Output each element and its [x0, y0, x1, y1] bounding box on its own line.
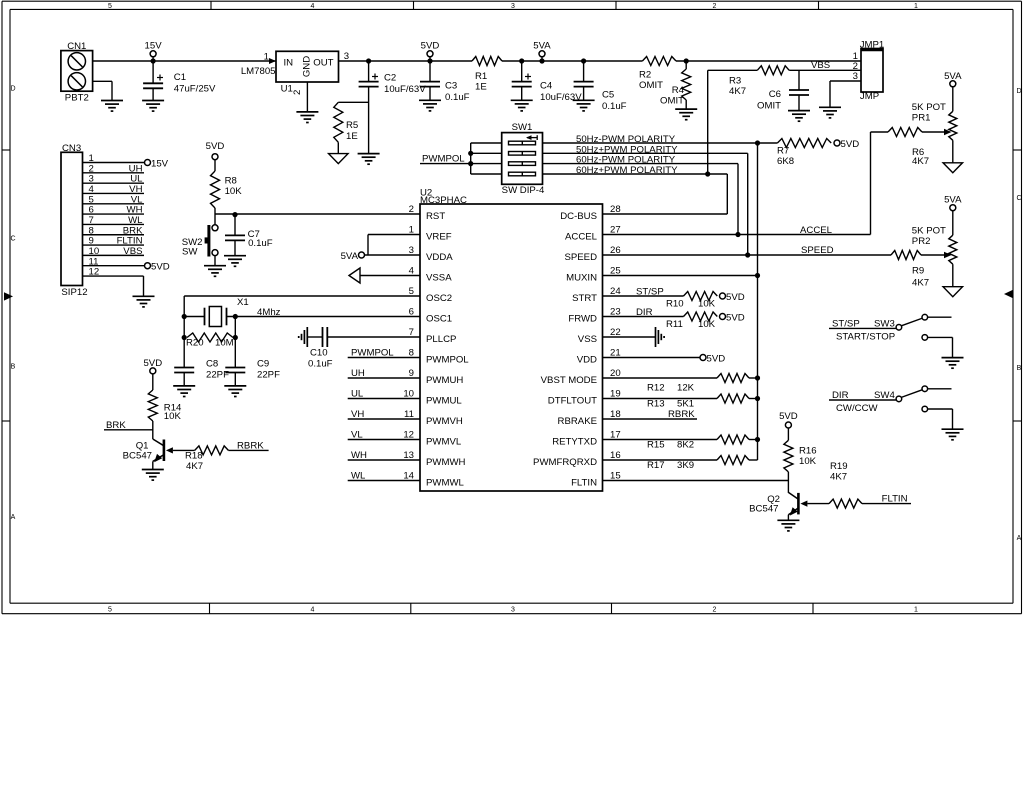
svg-text:UL: UL [351, 389, 364, 400]
svg-text:C4: C4 [540, 81, 553, 92]
svg-text:PWMVL: PWMVL [426, 437, 462, 448]
svg-text:SPEED: SPEED [564, 252, 597, 263]
svg-text:WL: WL [351, 471, 366, 482]
svg-text:0.1uF: 0.1uF [445, 92, 470, 103]
svg-text:RBRK: RBRK [237, 440, 264, 451]
svg-text:C6: C6 [769, 89, 781, 100]
svg-text:1E: 1E [475, 82, 487, 93]
svg-text:MC3PHAC: MC3PHAC [420, 195, 467, 206]
svg-text:5VA: 5VA [341, 251, 359, 262]
svg-text:RST: RST [426, 211, 445, 222]
svg-text:WH: WH [351, 450, 367, 461]
svg-text:ACCEL: ACCEL [565, 232, 598, 243]
svg-text:PWMWL: PWMWL [426, 478, 465, 489]
svg-text:SW DIP-4: SW DIP-4 [502, 185, 545, 196]
svg-text:4K7: 4K7 [830, 472, 847, 483]
svg-text:C10: C10 [310, 348, 328, 359]
svg-text:RETYTXD: RETYTXD [552, 437, 597, 448]
svg-text:RBRAKE: RBRAKE [558, 416, 597, 427]
svg-text:SW1: SW1 [512, 122, 533, 133]
svg-text:R8: R8 [225, 176, 237, 187]
svg-text:VDD: VDD [577, 355, 597, 366]
svg-text:SIP12: SIP12 [61, 287, 87, 298]
svg-text:R7: R7 [777, 146, 789, 157]
svg-text:5VD: 5VD [206, 141, 225, 152]
svg-text:JMP: JMP [860, 91, 879, 102]
svg-text:D: D [1016, 88, 1021, 95]
svg-text:RBRK: RBRK [668, 409, 695, 420]
svg-text:OMIT: OMIT [639, 80, 663, 91]
svg-text:R3: R3 [729, 76, 741, 87]
svg-text:R5: R5 [346, 120, 358, 131]
svg-text:BC547: BC547 [123, 451, 152, 462]
svg-text:22PF: 22PF [206, 370, 229, 381]
svg-text:OUT: OUT [313, 58, 333, 69]
svg-text:60Hz+PWM POLARITY: 60Hz+PWM POLARITY [576, 165, 678, 176]
svg-text:PWMUH: PWMUH [426, 375, 463, 386]
svg-text:5VD: 5VD [726, 313, 745, 324]
svg-text:12K: 12K [677, 383, 695, 394]
svg-text:1: 1 [914, 3, 918, 10]
svg-text:5: 5 [108, 607, 112, 614]
svg-text:10M: 10M [215, 338, 234, 349]
svg-text:4K7: 4K7 [912, 156, 929, 167]
svg-text:C: C [1016, 195, 1021, 202]
svg-text:PWMPOL: PWMPOL [351, 348, 394, 359]
svg-text:10K: 10K [225, 186, 243, 197]
svg-text:GND: GND [302, 56, 313, 77]
svg-text:BC547: BC547 [749, 504, 778, 515]
svg-text:VSSA: VSSA [426, 273, 452, 284]
svg-text:5: 5 [108, 3, 112, 10]
svg-text:C: C [10, 235, 15, 242]
svg-text:6K8: 6K8 [777, 156, 794, 167]
svg-text:R9: R9 [912, 266, 924, 277]
svg-text:4: 4 [310, 3, 314, 10]
svg-text:5K POT: 5K POT [912, 102, 946, 113]
svg-text:STRT: STRT [572, 293, 597, 304]
svg-text:B: B [1017, 365, 1022, 372]
svg-text:5VA: 5VA [944, 71, 962, 82]
svg-text:5VD: 5VD [143, 358, 162, 369]
svg-text:0.1uF: 0.1uF [248, 238, 273, 249]
svg-text:5VD: 5VD [151, 262, 170, 273]
svg-text:PWMWH: PWMWH [426, 457, 466, 468]
svg-text:LM7805: LM7805 [241, 66, 276, 77]
svg-text:15V: 15V [145, 41, 163, 52]
svg-text:VBST MODE: VBST MODE [541, 375, 597, 386]
svg-text:JMP1: JMP1 [860, 40, 885, 51]
svg-text:R17: R17 [647, 460, 665, 471]
svg-text:4K7: 4K7 [729, 86, 746, 97]
svg-text:5VD: 5VD [421, 41, 440, 52]
svg-text:A: A [1017, 535, 1022, 542]
svg-text:5VD: 5VD [707, 354, 726, 365]
svg-text:10uF/63V: 10uF/63V [540, 92, 582, 103]
svg-text:C5: C5 [602, 90, 614, 101]
svg-text:C9: C9 [257, 359, 269, 370]
svg-text:IN: IN [284, 58, 294, 69]
svg-text:CN1: CN1 [67, 41, 86, 52]
svg-text:B: B [11, 364, 16, 371]
svg-text:10K: 10K [698, 319, 716, 330]
svg-text:DC-BUS: DC-BUS [560, 211, 597, 222]
svg-text:R19: R19 [830, 461, 848, 472]
svg-text:DIR: DIR [636, 307, 653, 318]
svg-text:START/STOP: START/STOP [836, 332, 895, 343]
svg-text:60Hz-PWM POLARITY: 60Hz-PWM POLARITY [576, 155, 676, 166]
svg-text:PWMUL: PWMUL [426, 396, 462, 407]
svg-text:PR1: PR1 [912, 113, 931, 124]
svg-text:DIR: DIR [832, 390, 849, 401]
svg-text:A: A [11, 514, 16, 521]
svg-text:0.1uF: 0.1uF [308, 359, 333, 370]
svg-text:CN3: CN3 [62, 143, 81, 154]
svg-text:R2: R2 [639, 70, 651, 81]
svg-text:5VD: 5VD [841, 139, 860, 150]
svg-text:R4: R4 [672, 85, 685, 96]
svg-text:R10: R10 [666, 299, 684, 310]
svg-text:C1: C1 [174, 72, 186, 83]
svg-text:OSC2: OSC2 [426, 293, 452, 304]
svg-text:VBS: VBS [123, 246, 142, 257]
svg-text:R20: R20 [186, 338, 204, 349]
svg-text:R13: R13 [647, 399, 665, 410]
svg-text:4K7: 4K7 [186, 461, 203, 472]
svg-text:SW: SW [182, 247, 198, 258]
svg-text:ACCEL: ACCEL [800, 225, 833, 236]
svg-text:SW4: SW4 [874, 390, 895, 401]
svg-text:ST/SP: ST/SP [636, 287, 664, 298]
svg-text:R11: R11 [666, 319, 683, 330]
svg-text:MUXIN: MUXIN [566, 273, 597, 284]
svg-text:VBS: VBS [811, 60, 830, 71]
svg-text:10K: 10K [799, 456, 817, 467]
svg-text:10K: 10K [164, 411, 182, 422]
svg-text:UH: UH [351, 368, 365, 379]
svg-text:1E: 1E [346, 131, 358, 142]
svg-text:8K2: 8K2 [677, 440, 694, 451]
svg-text:VDDA: VDDA [426, 252, 453, 263]
svg-text:FRWD: FRWD [568, 314, 597, 325]
svg-text:OMIT: OMIT [660, 96, 684, 107]
svg-text:15V: 15V [151, 159, 169, 170]
svg-text:FLTIN: FLTIN [571, 478, 597, 489]
svg-text:VREF: VREF [426, 232, 452, 243]
svg-text:4: 4 [310, 607, 314, 614]
svg-text:3: 3 [511, 3, 515, 10]
svg-text:BRK: BRK [106, 420, 126, 431]
svg-text:5VA: 5VA [944, 195, 962, 206]
svg-text:2: 2 [713, 3, 717, 10]
svg-text:R1: R1 [475, 71, 487, 82]
svg-text:PLLCP: PLLCP [426, 334, 456, 345]
svg-text:3K9: 3K9 [677, 460, 694, 471]
svg-text:OMIT: OMIT [757, 101, 781, 112]
svg-text:10uF/63V: 10uF/63V [384, 84, 426, 95]
svg-text:SPEED: SPEED [801, 245, 834, 256]
svg-text:PWMPOL: PWMPOL [426, 355, 469, 366]
svg-text:PWMFRQRXD: PWMFRQRXD [533, 457, 597, 468]
svg-text:X1: X1 [237, 297, 249, 308]
svg-text:C8: C8 [206, 359, 218, 370]
svg-text:3: 3 [853, 71, 858, 82]
svg-text:PR2: PR2 [912, 236, 931, 247]
svg-text:FLTIN: FLTIN [882, 493, 908, 504]
svg-text:22PF: 22PF [257, 370, 280, 381]
svg-text:CW/CCW: CW/CCW [836, 403, 879, 414]
svg-text:C3: C3 [445, 81, 457, 92]
svg-text:R15: R15 [647, 440, 665, 451]
svg-text:DTFLTOUT: DTFLTOUT [548, 396, 597, 407]
svg-text:5K POT: 5K POT [912, 226, 946, 237]
svg-text:R12: R12 [647, 383, 665, 394]
svg-text:4K7: 4K7 [912, 278, 929, 289]
svg-text:2: 2 [292, 90, 303, 95]
svg-text:C2: C2 [384, 73, 396, 84]
svg-text:3: 3 [511, 607, 515, 614]
svg-text:R16: R16 [799, 446, 817, 457]
svg-text:47uF/25V: 47uF/25V [174, 84, 216, 95]
svg-text:ST/SP: ST/SP [832, 319, 860, 330]
svg-text:5K1: 5K1 [677, 399, 694, 410]
svg-text:1: 1 [914, 607, 918, 614]
svg-text:PWMVH: PWMVH [426, 416, 463, 427]
svg-text:VL: VL [351, 430, 363, 441]
svg-text:5VA: 5VA [533, 41, 551, 52]
svg-text:VH: VH [351, 409, 364, 420]
svg-text:1: 1 [264, 52, 269, 63]
svg-text:5VD: 5VD [726, 292, 745, 303]
svg-text:10K: 10K [698, 299, 716, 310]
svg-text:PWMPOL: PWMPOL [422, 154, 465, 165]
svg-text:SW3: SW3 [874, 319, 895, 330]
svg-text:4Mhz: 4Mhz [257, 307, 281, 318]
svg-text:0.1uF: 0.1uF [602, 101, 627, 112]
svg-text:2: 2 [713, 607, 717, 614]
svg-text:5VD: 5VD [779, 411, 798, 422]
svg-text:VSS: VSS [578, 334, 597, 345]
svg-text:OSC1: OSC1 [426, 314, 452, 325]
svg-text:PBT2: PBT2 [65, 93, 89, 104]
svg-text:D: D [10, 86, 15, 93]
